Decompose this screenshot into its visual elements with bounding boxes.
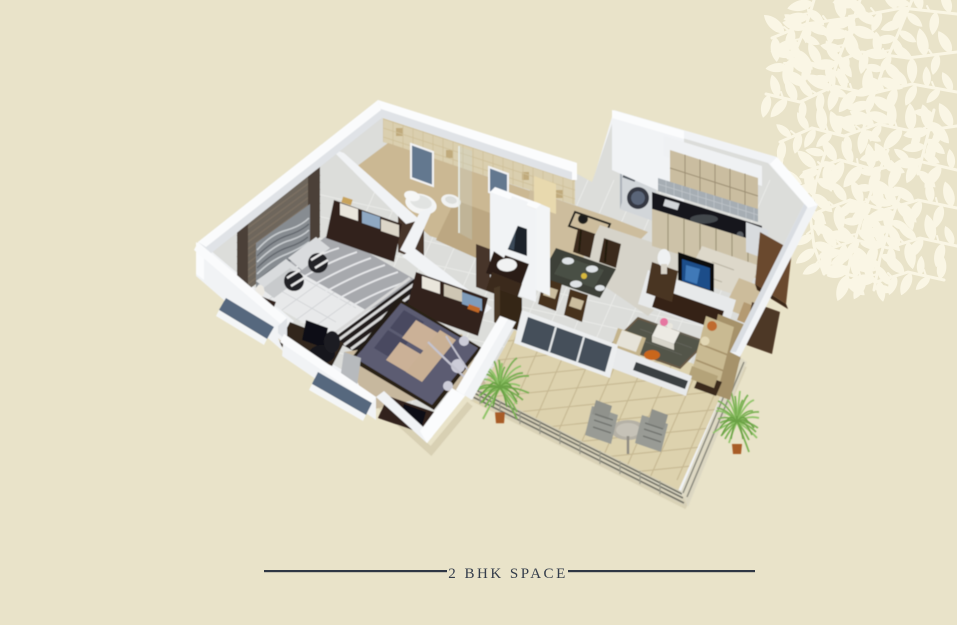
svg-text:2 BHK SPACE: 2 BHK SPACE	[448, 566, 567, 582]
